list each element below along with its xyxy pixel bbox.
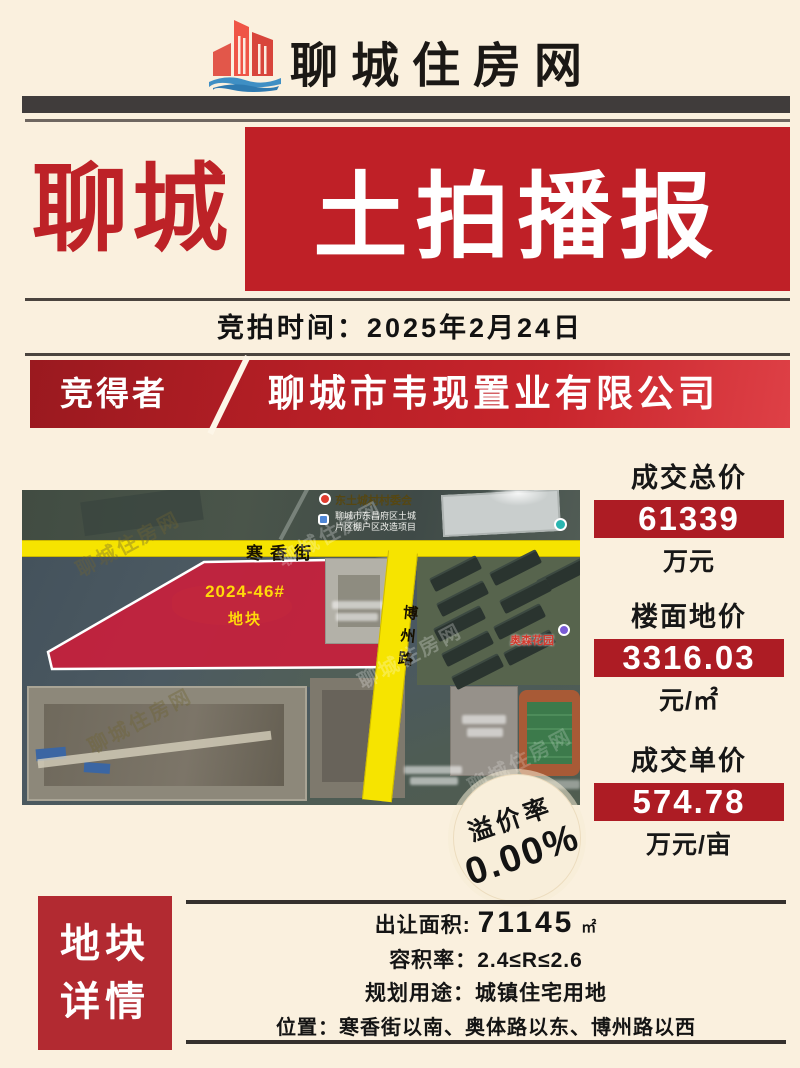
stat-label: 楼面地价 <box>588 595 790 634</box>
stat-value-box: 574.78 <box>594 783 784 821</box>
poi-teal-icon[interactable] <box>554 518 567 531</box>
stat-value-box: 3316.03 <box>594 639 784 677</box>
thin-divider <box>25 119 790 122</box>
detail-row-location: 位置：寒香街以南、奥体路以东、博州路以西 <box>186 1011 786 1040</box>
detail-row-area: 出让面积: 71145 ㎡ <box>186 906 786 940</box>
plot-name-label: 地块 <box>180 608 310 629</box>
banner-title-block: 土拍播报 <box>245 127 790 291</box>
poi-purple-icon[interactable] <box>558 624 570 636</box>
winner-company-name: 聊城市韦现置业有限公司 <box>268 360 719 428</box>
winner-label: 竞得者 <box>60 360 168 428</box>
garden-label: 奥森花园 <box>510 632 554 648</box>
land-auction-poster: 聊城住房网 聊城 土拍播报 竞拍时间：2025年2月24日 竞得者 聊城市韦现置… <box>0 0 800 1068</box>
detail-row-far: 容积率：2.4≤R≤2.6 <box>186 944 786 974</box>
winner-banner: 竞得者 聊城市韦现置业有限公司 <box>30 360 790 428</box>
plot-details-title-box: 地块 详情 <box>38 896 172 1050</box>
details-title-line2: 详情 <box>60 973 150 1031</box>
site-title: 聊城住房网 <box>290 26 595 96</box>
plot-details-rows: 出让面积: 71145 ㎡ 容积率：2.4≤R≤2.6 规划用途：城镇住宅用地 … <box>186 904 786 1042</box>
divider <box>25 353 790 356</box>
stat-value-box: 61339 <box>594 500 784 538</box>
details-title-line1: 地块 <box>60 915 150 973</box>
stat-unit: 万元/亩 <box>588 825 790 861</box>
header-divider-bar <box>22 96 790 113</box>
banner-title-text: 土拍播报 <box>313 141 721 277</box>
banner-city-text: 聊城 <box>18 130 246 290</box>
premium-rate-badge: 溢价率 0.00% <box>453 774 581 902</box>
area-unit: ㎡ <box>581 919 597 936</box>
diagonal-slash-decoration <box>207 355 250 435</box>
detail-row-use: 规划用途：城镇住宅用地 <box>186 977 786 1007</box>
stat-unit-price: 成交单价 574.78 万元/亩 <box>588 739 790 861</box>
area-value: 71145 <box>478 906 575 939</box>
stat-unit: 元/㎡ <box>588 681 790 717</box>
satellite-map[interactable]: 寒香街 博州路 2024-46# 地块 东土城村村委会 聊城市东昌府区土城 片区… <box>22 490 580 805</box>
stat-floor-price: 楼面地价 3316.03 元/㎡ <box>588 595 790 717</box>
site-logo-buildings-icon <box>207 10 283 92</box>
stat-label: 成交单价 <box>588 739 790 778</box>
plot-code-label: 2024-46# <box>180 582 310 602</box>
stat-total-price: 成交总价 61339 万元 <box>588 456 790 578</box>
stat-unit: 万元 <box>588 542 790 578</box>
village-pin-icon[interactable] <box>319 493 331 505</box>
auction-date: 竞拍时间：2025年2月24日 <box>0 306 800 350</box>
stat-label: 成交总价 <box>588 456 790 495</box>
divider <box>25 298 790 301</box>
